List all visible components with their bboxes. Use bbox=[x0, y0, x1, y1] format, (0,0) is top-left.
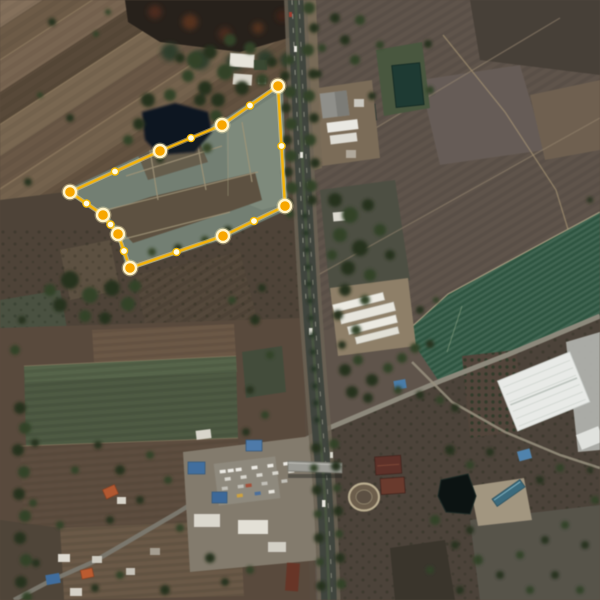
parcel-vertex-handle[interactable] bbox=[112, 228, 124, 240]
parcel-vertex-handle[interactable] bbox=[216, 119, 228, 131]
parcel-midpoint-handle[interactable] bbox=[120, 247, 127, 254]
parcel-vertex-handle[interactable] bbox=[154, 145, 166, 157]
parcel-vertex-handle[interactable] bbox=[97, 209, 109, 221]
parcel-midpoint-handle[interactable] bbox=[246, 102, 253, 109]
parcel-midpoint-handle[interactable] bbox=[187, 134, 194, 141]
parcel-midpoint-handle[interactable] bbox=[250, 217, 257, 224]
map-canvas[interactable] bbox=[0, 0, 600, 600]
parcel-vertex-handle[interactable] bbox=[217, 230, 229, 242]
parcel-midpoint-handle[interactable] bbox=[83, 200, 90, 207]
parcel-vertex-handle[interactable] bbox=[279, 200, 291, 212]
parcel-midpoint-handle[interactable] bbox=[111, 168, 118, 175]
land-parcel-overlay bbox=[0, 0, 600, 600]
parcel-midpoint-handle[interactable] bbox=[173, 248, 180, 255]
parcel-midpoint-handle[interactable] bbox=[278, 142, 285, 149]
parcel-vertex-handle[interactable] bbox=[124, 262, 136, 274]
parcel-vertex-handle[interactable] bbox=[272, 80, 284, 92]
parcel-vertex-handle[interactable] bbox=[64, 186, 76, 198]
parcel-midpoint-handle[interactable] bbox=[107, 221, 114, 228]
